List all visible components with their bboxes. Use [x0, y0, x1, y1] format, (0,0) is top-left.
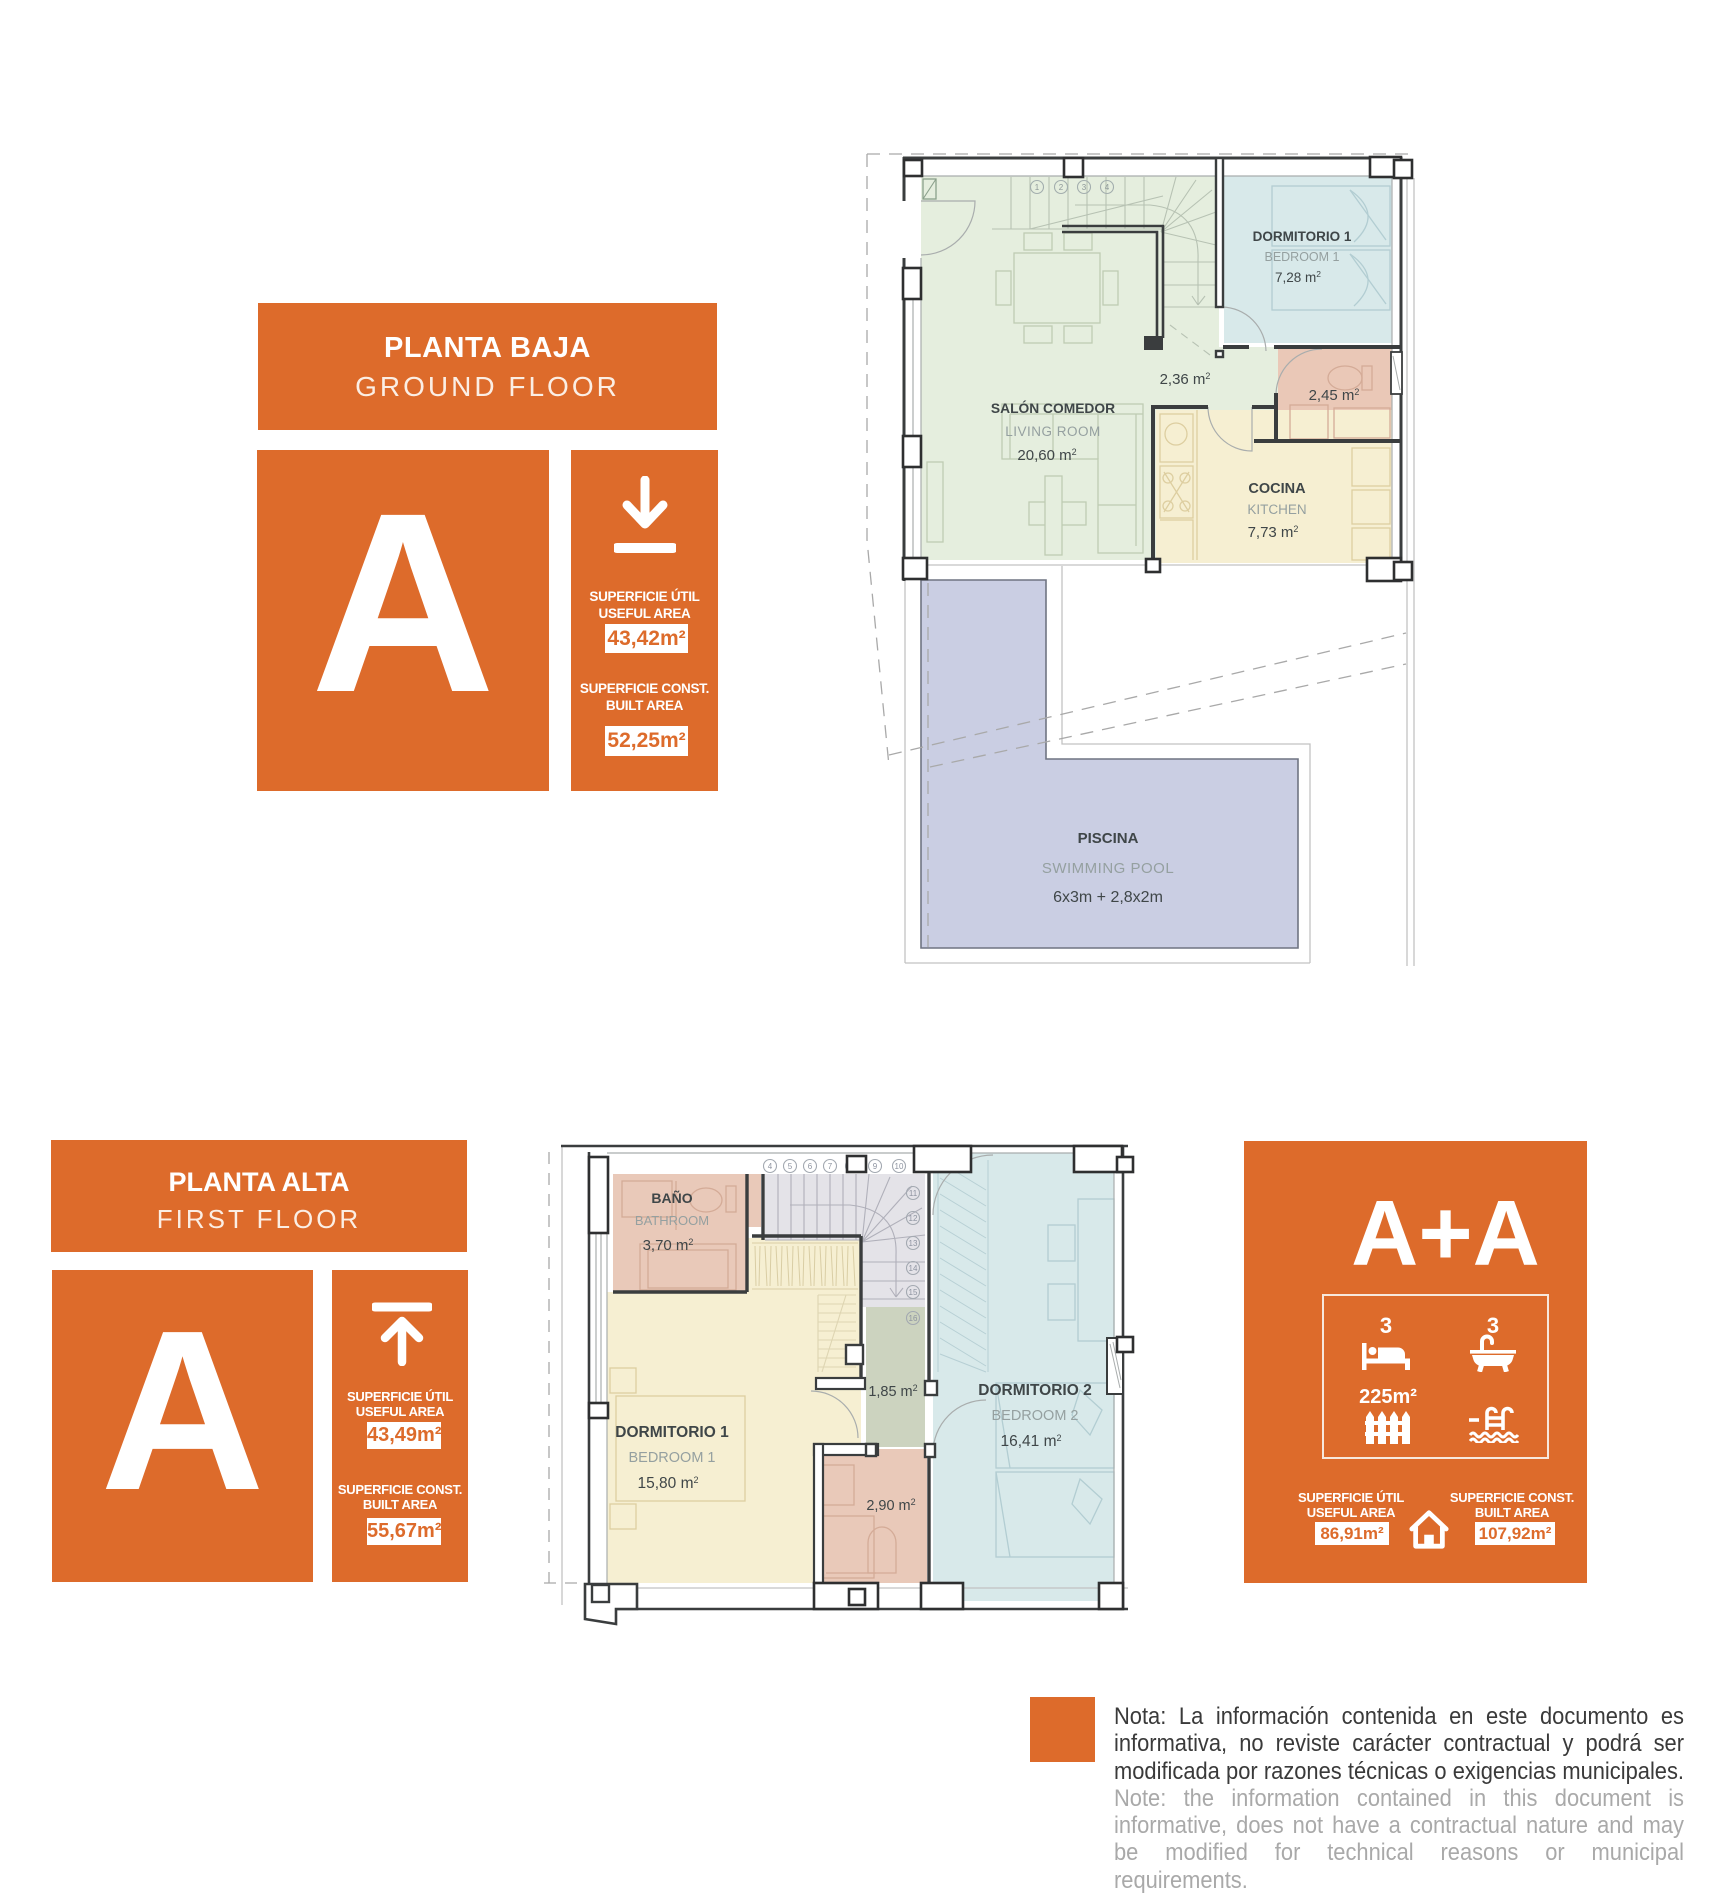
svg-text:15,80 m2: 15,80 m2 [637, 1475, 698, 1492]
svg-text:7: 7 [828, 1162, 833, 1171]
svg-text:PISCINA: PISCINA [1078, 830, 1139, 847]
svg-text:15: 15 [909, 1288, 918, 1297]
svg-text:2,45 m2: 2,45 m2 [1309, 387, 1360, 404]
svg-text:COCINA: COCINA [1248, 481, 1306, 497]
svg-text:1: 1 [1035, 183, 1040, 192]
svg-text:2,36 m2: 2,36 m2 [1160, 371, 1211, 388]
svg-text:5: 5 [788, 1162, 793, 1171]
svg-text:DORMITORIO 1: DORMITORIO 1 [1253, 229, 1352, 244]
svg-text:BEDROOM 1: BEDROOM 1 [628, 1450, 715, 1466]
svg-text:6x3m + 2,8x2m: 6x3m + 2,8x2m [1053, 889, 1163, 906]
svg-text:1,85 m2: 1,85 m2 [868, 1383, 917, 1400]
svg-text:2,90 m2: 2,90 m2 [866, 1497, 915, 1514]
svg-text:3: 3 [1082, 183, 1087, 192]
svg-text:6: 6 [808, 1162, 813, 1171]
svg-text:12: 12 [909, 1214, 918, 1223]
svg-text:DORMITORIO 2: DORMITORIO 2 [978, 1382, 1091, 1399]
svg-text:SWIMMING POOL: SWIMMING POOL [1042, 860, 1174, 877]
svg-text:BATHROOM: BATHROOM [635, 1213, 709, 1228]
svg-text:16,41 m2: 16,41 m2 [1000, 1433, 1061, 1450]
svg-text:LIVING ROOM: LIVING ROOM [1005, 424, 1101, 439]
svg-text:4: 4 [1105, 183, 1110, 192]
svg-text:11: 11 [909, 1189, 918, 1198]
svg-text:20,60 m2: 20,60 m2 [1017, 447, 1076, 464]
svg-text:16: 16 [909, 1314, 918, 1323]
svg-text:BEDROOM 2: BEDROOM 2 [991, 1408, 1078, 1424]
svg-text:10: 10 [895, 1162, 904, 1171]
svg-text:BEDROOM 1: BEDROOM 1 [1264, 250, 1339, 264]
svg-text:7,28 m2: 7,28 m2 [1275, 269, 1321, 285]
svg-text:7,73 m2: 7,73 m2 [1248, 524, 1299, 541]
svg-text:14: 14 [909, 1264, 918, 1273]
svg-text:9: 9 [873, 1162, 878, 1171]
svg-text:4: 4 [768, 1162, 773, 1171]
svg-text:SALÓN COMEDOR: SALÓN COMEDOR [991, 399, 1115, 416]
svg-text:DORMITORIO 1: DORMITORIO 1 [615, 1424, 729, 1441]
svg-text:13: 13 [909, 1239, 918, 1248]
svg-text:2: 2 [1059, 183, 1064, 192]
svg-text:3,70 m2: 3,70 m2 [643, 1237, 694, 1254]
svg-text:BAÑO: BAÑO [651, 1189, 692, 1206]
svg-text:KITCHEN: KITCHEN [1247, 502, 1306, 517]
